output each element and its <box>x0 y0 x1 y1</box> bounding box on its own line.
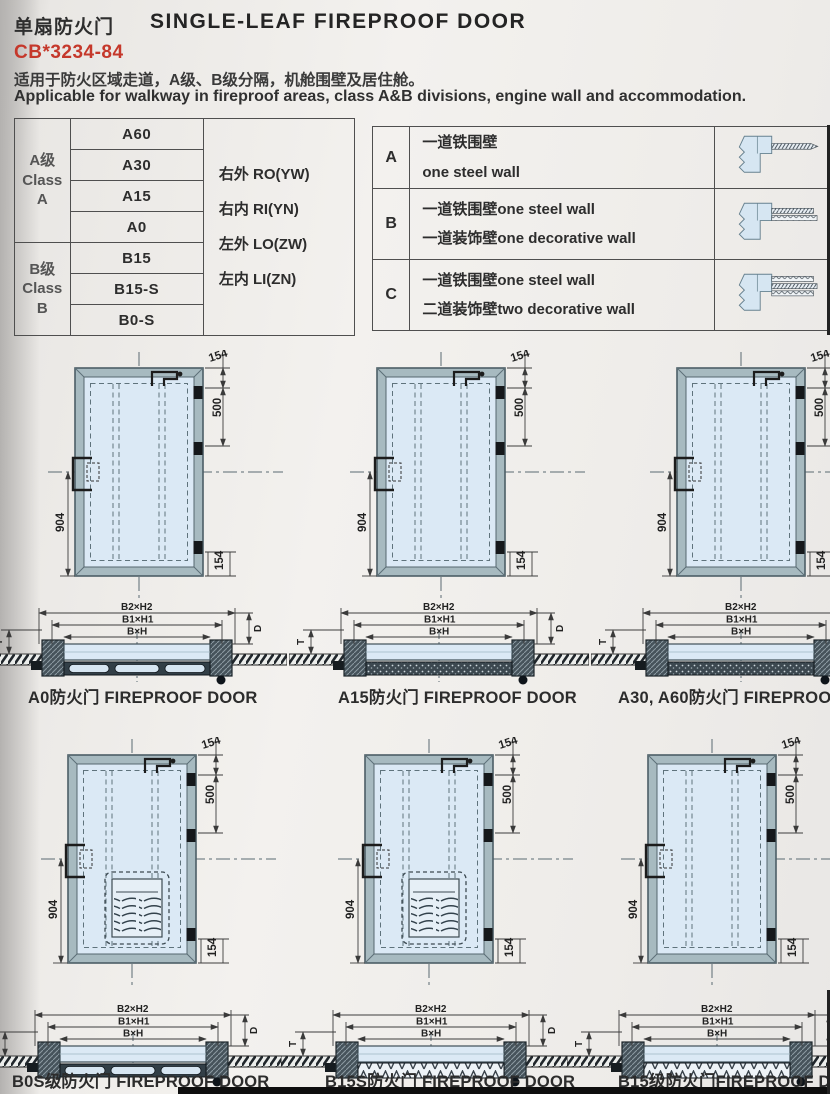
door-section-a0 <box>0 598 287 688</box>
class-b-line1: B级 <box>15 260 70 280</box>
orientation-cell: 右外 RO(YW) 右内 RI(YN) 左外 LO(ZW) 左内 LI(ZN) <box>203 119 354 336</box>
class-b-line2: Class <box>15 279 70 299</box>
class-a-line3: A <box>15 190 70 210</box>
scanned-catalog-page: 154 500 154 904 <box>0 0 830 1094</box>
door-section-a30-a60 <box>591 598 830 688</box>
wall-a-line1: 一道铁围壁 <box>422 128 714 157</box>
wall-section-a-drawing <box>717 127 825 183</box>
rating-a15-cell: A15 <box>70 181 203 212</box>
table-row: C 一道铁围壁one steel wall 二道装饰壁two decorativ… <box>373 260 828 331</box>
class-b-line3: B <box>15 299 70 319</box>
wall-c-line2: 二道装饰壁two decorative wall <box>422 295 714 324</box>
door-label-a0: A0防火门 FIREPROOF DOOR <box>28 684 258 708</box>
wall-b-line1: 一道铁围壁one steel wall <box>422 195 714 224</box>
rating-table: A级 Class A A60 右外 RO(YW) 右内 RI(YN) 左外 LO… <box>14 118 355 336</box>
wall-c-drawing-cell <box>715 260 828 331</box>
door-elevation-a15 <box>342 350 592 600</box>
class-a-line1: A级 <box>15 151 70 171</box>
wall-section-c-drawing <box>717 265 825 321</box>
standard-number: CB*3234-84 <box>14 42 124 64</box>
door-elevation-a30-a60 <box>642 350 830 600</box>
wall-a-drawing-cell <box>715 127 828 189</box>
rating-a0-cell: A0 <box>70 212 203 243</box>
orient-lo: 左外 LO(ZW) <box>219 227 354 262</box>
description-cn: 适用于防火区域走道，A级、B级分隔，机舱围壁及居住舱。 <box>14 68 424 90</box>
door-section-a15 <box>289 598 589 688</box>
rating-b15-cell: B15 <box>70 243 203 274</box>
wall-c-key: C <box>373 260 410 331</box>
door-label-a15: A15防火门 FIREPROOF DOOR <box>338 684 577 708</box>
wall-b-desc: 一道铁围壁one steel wall 一道装饰壁one decorative … <box>410 189 715 260</box>
orient-ro: 右外 RO(YW) <box>219 157 354 192</box>
class-a-line2: Class <box>15 171 70 191</box>
description-en: Applicable for walkway in fireproof area… <box>14 88 746 106</box>
rating-a30-cell: A30 <box>70 150 203 181</box>
page-title-cn: 单扇防火门 <box>14 12 114 39</box>
table-row: B 一道铁围壁one steel wall 一道装饰壁one decorativ… <box>373 189 828 260</box>
orient-li: 左内 LI(ZN) <box>219 262 354 297</box>
rating-b0s-cell: B0-S <box>70 305 203 336</box>
page-title-en: SINGLE-LEAF FIREPROOF DOOR <box>150 10 526 34</box>
class-b-cell: B级 Class B <box>15 243 71 336</box>
class-a-cell: A级 Class A <box>15 119 71 243</box>
table-row: A级 Class A A60 右外 RO(YW) 右内 RI(YN) 左外 LO… <box>15 119 355 150</box>
wall-b-drawing-cell <box>715 189 828 260</box>
wall-a-line2: one steel wall <box>422 158 714 187</box>
door-label-a30-a60: A30, A60防火门 FIREPROOF D <box>618 684 830 708</box>
door-elevation-b15s <box>330 737 580 987</box>
door-elevation-b15 <box>613 737 830 987</box>
wall-b-key: B <box>373 189 410 260</box>
wall-c-desc: 一道铁围壁one steel wall 二道装饰壁two decorative … <box>410 260 715 331</box>
door-elevation-b0s <box>33 737 283 987</box>
rating-a60-cell: A60 <box>70 119 203 150</box>
orient-ri: 右内 RI(YN) <box>219 192 354 227</box>
table-row: A 一道铁围壁 one steel wall <box>373 127 828 189</box>
rating-b15s-cell: B15-S <box>70 274 203 305</box>
wall-config-table: A 一道铁围壁 one steel wall B 一道铁围壁one steel … <box>372 126 828 331</box>
wall-a-key: A <box>373 127 410 189</box>
wall-b-line2: 一道装饰壁one decorative wall <box>422 224 714 253</box>
wall-section-b-drawing <box>717 194 825 250</box>
scan-bottom-edge <box>178 1087 830 1094</box>
wall-a-desc: 一道铁围壁 one steel wall <box>410 127 715 189</box>
wall-c-line1: 一道铁围壁one steel wall <box>422 266 714 295</box>
door-elevation-a0 <box>40 350 290 600</box>
